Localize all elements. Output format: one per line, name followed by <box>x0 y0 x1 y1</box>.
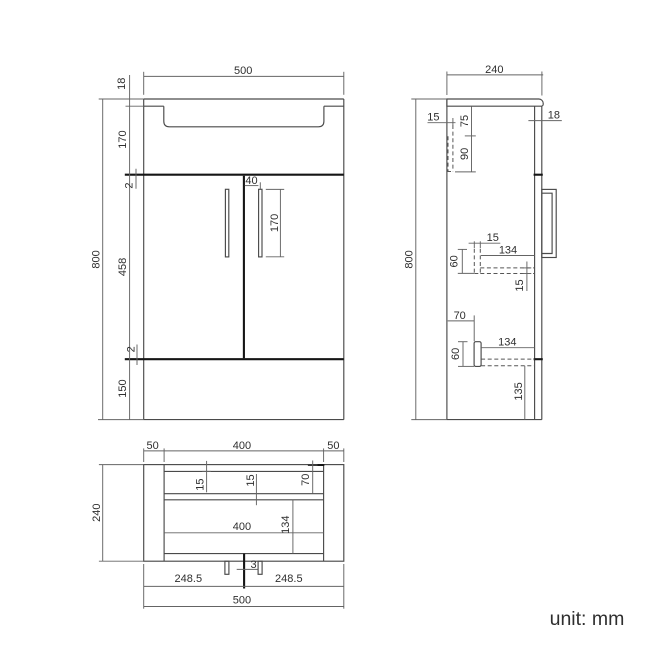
svg-text:unit: mm: unit: mm <box>550 608 625 630</box>
svg-text:134: 134 <box>498 337 516 349</box>
svg-text:75: 75 <box>459 115 471 127</box>
svg-text:18: 18 <box>548 109 560 121</box>
svg-text:400: 400 <box>233 521 251 533</box>
svg-text:50: 50 <box>327 440 339 452</box>
svg-text:70: 70 <box>300 474 312 486</box>
svg-text:60: 60 <box>450 348 462 360</box>
svg-text:134: 134 <box>499 244 517 256</box>
svg-text:800: 800 <box>90 250 102 268</box>
svg-text:240: 240 <box>91 504 103 522</box>
svg-text:170: 170 <box>117 130 129 148</box>
svg-text:135: 135 <box>513 382 525 400</box>
svg-text:2: 2 <box>126 346 138 352</box>
svg-text:800: 800 <box>403 250 415 268</box>
svg-text:2: 2 <box>123 183 135 189</box>
svg-text:15: 15 <box>427 112 439 124</box>
svg-text:248.5: 248.5 <box>275 573 303 585</box>
svg-text:40: 40 <box>245 175 257 187</box>
svg-text:500: 500 <box>234 65 252 77</box>
svg-text:3: 3 <box>250 559 256 571</box>
svg-text:170: 170 <box>269 214 281 232</box>
svg-text:500: 500 <box>233 594 251 606</box>
svg-text:90: 90 <box>459 148 471 160</box>
svg-text:400: 400 <box>233 440 251 452</box>
svg-text:15: 15 <box>245 474 257 486</box>
svg-text:60: 60 <box>448 255 460 267</box>
svg-text:150: 150 <box>117 379 129 397</box>
svg-text:240: 240 <box>485 64 503 76</box>
svg-text:50: 50 <box>146 440 158 452</box>
svg-text:70: 70 <box>454 310 466 322</box>
svg-text:18: 18 <box>116 78 128 90</box>
svg-text:458: 458 <box>117 258 129 276</box>
svg-text:248.5: 248.5 <box>175 573 203 585</box>
svg-text:15: 15 <box>514 279 526 291</box>
svg-text:15: 15 <box>487 232 499 244</box>
svg-text:15: 15 <box>195 478 207 490</box>
svg-text:134: 134 <box>280 516 292 534</box>
